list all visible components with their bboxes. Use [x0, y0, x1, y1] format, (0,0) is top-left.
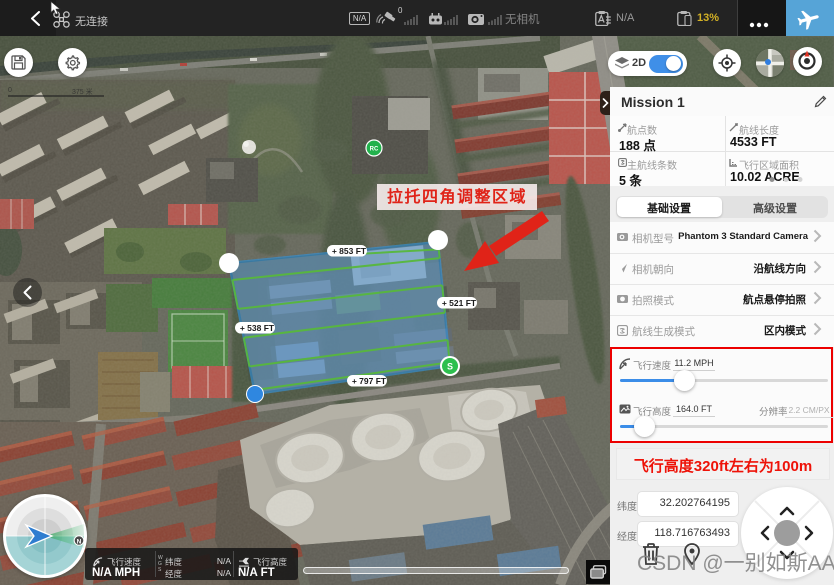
svg-text:+ 521 FT: + 521 FT [442, 298, 477, 308]
svg-text:+ 853 FT: + 853 FT [332, 246, 367, 256]
svg-text:N: N [77, 538, 82, 545]
svg-text:S: S [447, 362, 453, 372]
svg-text:拉托四角调整区域: 拉托四角调整区域 [387, 187, 527, 206]
svg-text:RC: RC [370, 147, 379, 153]
svg-text:+ 538 FT: + 538 FT [240, 323, 275, 333]
svg-text:+ 797 FT: + 797 FT [352, 376, 387, 386]
